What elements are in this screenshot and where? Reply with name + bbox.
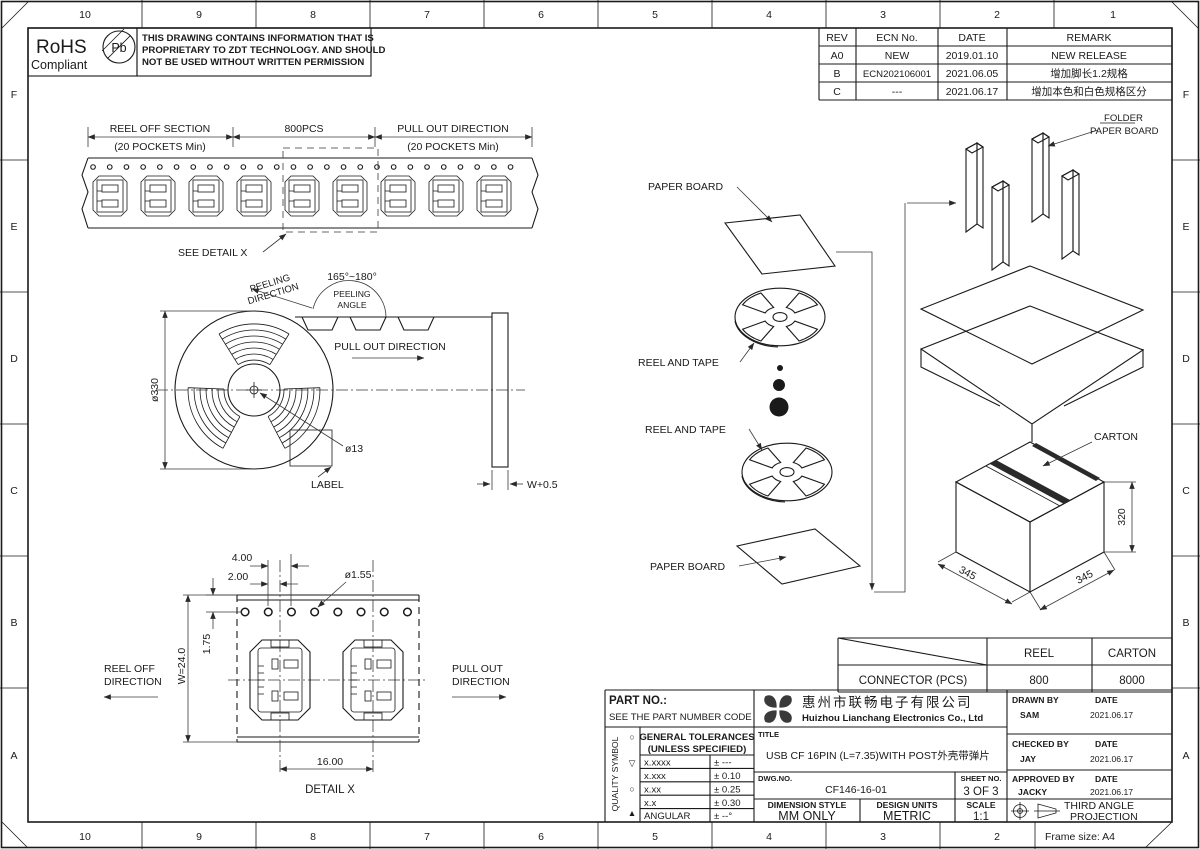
qty-carton-value: 8000 [1119, 675, 1145, 687]
tol-range: x.x [644, 798, 656, 809]
carrier-tape-view: REEL OFF SECTION (20 POCKETS Min) 800PCS… [82, 123, 538, 259]
detail-x-view: 4.00 2.00 ø1.55 1.75 W=24.0 16.00 REEL O… [104, 552, 510, 796]
tape-qty-label: 800PCS [284, 123, 323, 135]
date-label: DATE [1095, 739, 1118, 749]
rev-cell: C [833, 86, 841, 98]
quality-symbol-circle-icon: ○ [629, 732, 634, 742]
zone-label: 7 [424, 831, 430, 843]
open-carton [921, 266, 1143, 442]
checked-by-value: JAY [1020, 754, 1036, 764]
zone-row-labels-left: F E D C B A [10, 89, 18, 762]
qty-row-label: CONNECTOR (PCS) [859, 675, 968, 687]
pb-free-icon: Pb [102, 29, 135, 63]
drawing-title: USB CF 16PIN (L=7.35)WITH POST外壳带弹片 [766, 749, 990, 762]
zone-column-labels-bottom: 10 9 8 7 6 5 4 3 2 [79, 831, 1000, 843]
scale-value: 1:1 [973, 811, 989, 823]
checked-date: 2021.06.17 [1090, 754, 1133, 764]
title-block: PART NO.: SEE THE PART NUMBER CODE QUALI… [605, 690, 1172, 823]
zone-label: B [10, 617, 17, 629]
zone-label: 4 [766, 9, 772, 21]
quality-symbol-filled-icon: ▲ [628, 808, 637, 818]
rohs-compliant-label: Compliant [31, 58, 88, 72]
date-label: DATE [1095, 774, 1118, 784]
reel-and-tape-label-2: REEL AND TAPE [645, 424, 726, 436]
sheet-no-value: 3 OF 3 [963, 786, 998, 798]
projection-label-2: PROJECTION [1070, 811, 1138, 823]
detail-x-zone-box [283, 148, 378, 232]
zone-label: C [1182, 485, 1190, 497]
zone-label: C [10, 485, 18, 497]
reel-off-section-sub: (20 POCKETS Min) [114, 141, 206, 153]
engineering-drawing-sheet: 10 9 8 7 6 5 4 3 2 1 10 9 8 7 6 5 4 3 2 … [0, 0, 1200, 849]
design-units-value: METRIC [883, 809, 931, 823]
zone-label: 10 [79, 9, 91, 21]
peeling-angle-range: 165°~180° [327, 271, 377, 283]
rev-cell: 2021.06.17 [946, 86, 999, 98]
rohs-label: RoHS [36, 37, 87, 58]
zone-label: 10 [79, 831, 91, 843]
zone-label: 4 [766, 831, 772, 843]
zone-label: E [10, 221, 17, 233]
company-name-en: Huizhou Lianchang Electronics Co., Ltd [802, 713, 983, 724]
reel-width-dim: W+0.5 [527, 479, 558, 491]
detail-pull-out-label2: DIRECTION [452, 676, 510, 688]
detail-pull-out-label: PULL OUT [452, 663, 504, 675]
zone-label: 5 [652, 831, 658, 843]
folder-paper-board-label: PAPER BOARD [1090, 126, 1159, 137]
label-callout: LABEL [311, 479, 344, 491]
zone-label: 1 [1110, 9, 1116, 21]
tol-range: ANGULAR [644, 811, 690, 822]
revision-row: B ECN202106001 2021.06.05 增加脚长1.2规格 [833, 67, 1128, 80]
tol-value: ± 0.10 [714, 771, 741, 782]
edge-dim: 1.75 [201, 634, 213, 655]
offset-dim: 2.00 [228, 571, 249, 583]
carton-right-dim: 345 [1074, 568, 1095, 587]
tol-range: x.xxx [644, 771, 666, 782]
dwg-no-value: CF146-16-01 [825, 784, 887, 796]
tolerances-subtitle: (UNLESS SPECIFIED) [648, 744, 747, 755]
folder-paper-boards [966, 133, 1079, 270]
reel-pull-out-label: PULL OUT DIRECTION [334, 341, 445, 353]
peeling-angle-label: PEELING [333, 289, 371, 299]
qty-col-carton: CARTON [1108, 648, 1156, 660]
zone-label: 2 [994, 9, 1000, 21]
company-logo-icon [762, 693, 795, 726]
third-angle-projection-icon [1011, 802, 1060, 820]
revision-row: A0 NEW 2019.01.10 NEW RELEASE [831, 50, 1127, 62]
carton-height-dim: 320 [1116, 508, 1128, 526]
zone-row-labels-right: F E D C B A [1182, 89, 1190, 762]
rev-header: ECN No. [876, 32, 917, 44]
reel-diameter-dim: ø330 [149, 378, 161, 402]
tol-range: x.xx [644, 784, 661, 795]
carton-left-dim: 345 [957, 564, 978, 583]
date-label: DATE [1095, 695, 1118, 705]
approved-by-value: JACKY [1018, 787, 1047, 797]
detail-reel-off-label: REEL OFF [104, 663, 155, 675]
zone-label: 7 [424, 9, 430, 21]
peeling-angle-label: ANGLE [337, 300, 366, 310]
rev-header: REMARK [1067, 32, 1112, 44]
paper-board-top-label: PAPER BOARD [648, 181, 723, 193]
span-dim: 16.00 [317, 756, 343, 768]
notice-line: PROPRIETARY TO ZDT TECHNOLOGY. AND SHOUL… [142, 45, 385, 56]
zone-label: D [10, 353, 18, 365]
zone-label: 8 [310, 9, 316, 21]
zone-label: A [1182, 750, 1189, 762]
zone-label: F [11, 89, 17, 101]
zone-label: 9 [196, 9, 202, 21]
drawn-date: 2021.06.17 [1090, 710, 1133, 720]
packed-reel-1 [735, 288, 825, 347]
tolerances-title: GENERAL TOLERANCES [639, 732, 755, 743]
carton-label: CARTON [1094, 431, 1138, 443]
part-no-value: SEE THE PART NUMBER CODE [609, 712, 752, 723]
paper-board-bottom-label: PAPER BOARD [650, 561, 725, 573]
see-detail-label: SEE DETAIL X [178, 247, 247, 259]
paper-board-top-shape [725, 215, 835, 274]
scale-label: SCALE [966, 800, 995, 810]
reel-and-tape-label-1: REEL AND TAPE [638, 357, 719, 369]
rev-cell: --- [892, 86, 903, 98]
zone-label: B [1182, 617, 1189, 629]
checked-by-label: CHECKED BY [1012, 739, 1069, 749]
title-label: TITLE [758, 730, 779, 739]
hub-diameter-dim: ø13 [345, 443, 363, 455]
rev-cell: ECN202106001 [863, 69, 931, 80]
zone-label: 3 [880, 831, 886, 843]
part-no-label: PART NO.: [609, 695, 667, 707]
pull-out-direction-label: PULL OUT DIRECTION [397, 123, 508, 135]
tol-value: ± 0.25 [714, 784, 741, 795]
revision-table: REV ECN No. DATE REMARK A0 NEW 2019.01.1… [819, 28, 1172, 100]
carton-tape-band [990, 460, 1070, 504]
proprietary-notice: THIS DRAWING CONTAINS INFORMATION THAT I… [142, 33, 385, 68]
drawn-by-label: DRAWN BY [1012, 695, 1059, 705]
drawing-canvas: 10 9 8 7 6 5 4 3 2 1 10 9 8 7 6 5 4 3 2 … [0, 0, 1200, 849]
rev-cell: NEW [885, 50, 910, 62]
zone-label: 6 [538, 831, 544, 843]
rev-header: REV [826, 32, 848, 44]
quality-symbol-circle2-icon: ○ [629, 784, 634, 794]
tol-range: x.xxxx [644, 758, 671, 769]
hole-diameter-dim: ø1.55 [345, 569, 372, 581]
rev-header: DATE [958, 32, 985, 44]
zone-label: A [10, 750, 17, 762]
zone-label: 9 [196, 831, 202, 843]
revision-row: C --- 2021.06.17 增加本色和白色规格区分 [833, 85, 1147, 98]
zone-label: 2 [994, 831, 1000, 843]
closed-carton [956, 442, 1104, 592]
company-name-cn: 惠州市联畅电子有限公司 [802, 694, 973, 710]
zone-label: 3 [880, 9, 886, 21]
dimension-style-value: MM ONLY [778, 809, 836, 823]
tol-value: ± --- [714, 758, 732, 769]
approved-date: 2021.06.17 [1090, 787, 1133, 797]
reel-view: ø330 ø13 LABEL PEELING DIRECTION 165°~18… [149, 271, 558, 491]
paper-board-bottom-shape [737, 529, 860, 584]
drawn-by-value: SAM [1020, 710, 1039, 720]
qty-reel-value: 800 [1029, 675, 1048, 687]
qty-col-reel: REEL [1024, 648, 1055, 660]
quality-symbol-triangle-icon: ▽ [629, 758, 636, 768]
rev-cell: NEW RELEASE [1051, 50, 1127, 62]
zone-label: 6 [538, 9, 544, 21]
dwg-no-label: DWG.NO. [758, 774, 792, 783]
detail-reel-off-label2: DIRECTION [104, 676, 162, 688]
tol-value: ± --° [714, 811, 732, 822]
notice-line: NOT BE USED WITHOUT WRITTEN PERMISSION [142, 57, 364, 68]
zone-label: 5 [652, 9, 658, 21]
tape-width-dim: W=24.0 [176, 648, 188, 685]
tol-value: ± 0.30 [714, 798, 741, 809]
packed-reel-2 [742, 443, 832, 502]
detail-caption: DETAIL X [305, 784, 355, 796]
zone-label: D [1182, 353, 1190, 365]
rev-cell: 2021.06.05 [946, 68, 999, 80]
zone-label: 8 [310, 831, 316, 843]
packing-sequence: PAPER BOARD REEL AND TAPE REEL AND TAPE … [638, 113, 1159, 610]
notice-line: THIS DRAWING CONTAINS INFORMATION THAT I… [142, 33, 374, 44]
zone-label: F [1183, 89, 1189, 101]
rev-cell: A0 [831, 50, 844, 62]
folder-label: FOLDER [1104, 113, 1143, 124]
rev-cell: B [833, 68, 840, 80]
rev-cell: 2019.01.10 [946, 50, 999, 62]
reel-off-section-label: REEL OFF SECTION [110, 123, 211, 135]
zone-label: E [1182, 221, 1189, 233]
pitch-dim: 4.00 [232, 552, 253, 564]
sheet-no-label: SHEET NO. [961, 774, 1002, 783]
rohs-block: RoHS Compliant Pb THIS DRAWING CONTAINS … [28, 28, 385, 76]
approved-by-label: APPROVED BY [1012, 774, 1075, 784]
quality-symbol-label: QUALITY SYMBOL [610, 736, 620, 811]
rev-cell: 增加本色和白色规格区分 [1031, 85, 1147, 98]
frame-size-label: Frame size: A4 [1045, 831, 1115, 843]
pull-out-direction-sub: (20 POCKETS Min) [407, 141, 499, 153]
signature-rows: DRAWN BY DATE SAM 2021.06.17 CHECKED BY … [1012, 695, 1133, 797]
rev-cell: 增加脚长1.2规格 [1050, 67, 1128, 80]
quantity-table: REEL CARTON CONNECTOR (PCS) 800 8000 [838, 638, 1172, 692]
tolerance-rows: x.xxxx ± --- x.xxx ± 0.10 x.xx ± 0.25 x.… [644, 758, 741, 823]
